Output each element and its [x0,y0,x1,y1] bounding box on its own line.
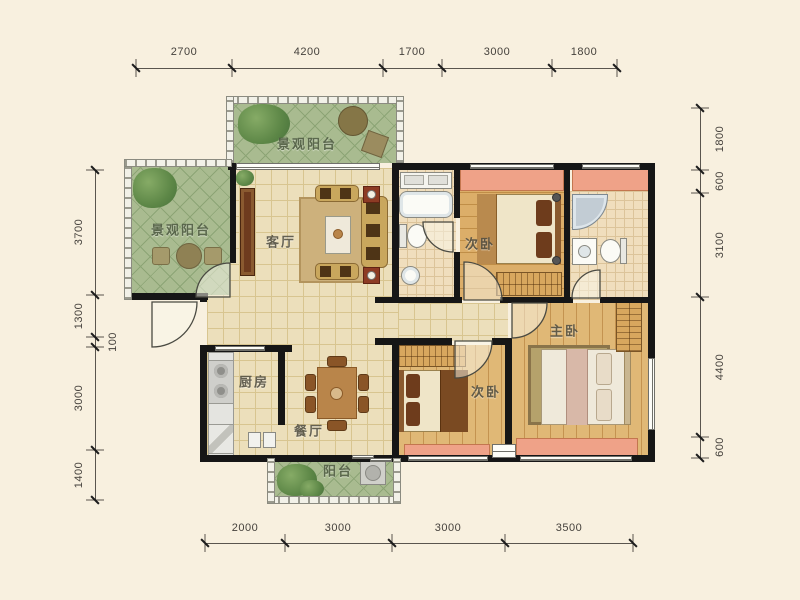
balcony-railing [226,96,234,163]
entrance-door-arc [152,302,197,347]
wall-segment [128,293,208,300]
dim-right-0: 1800 [714,126,726,152]
floor-plan: 2700 4200 1700 3000 1800 2000 3000 3000 … [0,0,800,600]
bath-sink [401,266,420,285]
burner [214,364,228,378]
bed-blanket [440,370,468,432]
dim-left-3: 3000 [73,385,85,411]
wall-segment [392,338,452,345]
wall-segment [505,338,512,461]
patio-table [338,106,368,136]
wardrobe [616,300,642,352]
dim-line-bottom [205,543,633,544]
wall-segment [392,297,462,303]
dim-right-4: 600 [714,437,726,457]
dining-chair [358,396,369,413]
dim-bottom-2: 3000 [435,522,461,534]
room-label-balcony-top: 景观阳台 [277,134,337,153]
wall-segment [392,345,399,461]
appliance [263,432,276,448]
toilet-bowl [407,224,427,248]
balcony-railing [396,96,404,163]
wall-segment [454,252,460,303]
toilet-bowl [600,239,621,263]
dim-bottom-0: 2000 [232,522,258,534]
dining-chair [327,420,347,431]
wall-segment [375,297,392,303]
bed-blanket [566,349,588,425]
room-label-kitchen: 厨房 [239,372,269,391]
wall-segment [278,345,285,425]
dining-chair [305,374,316,391]
wall-segment [500,297,573,303]
room-label-bedroom-top: 次卧 [465,234,495,253]
room-label-balcony-bottom: 阳台 [323,461,353,480]
patio-chair [152,247,170,265]
window [648,358,655,430]
dim-line-top [136,68,617,69]
wall-segment [200,348,207,462]
window [582,164,640,169]
headboard [624,349,631,425]
cushion [340,266,351,277]
headboard [555,194,561,264]
window [520,456,632,461]
basin-drum [365,465,381,481]
cushion [320,266,331,277]
dim-left-1: 1300 [73,303,85,329]
table-decor [330,387,343,400]
dining-chair [358,374,369,391]
balcony-railing [267,458,275,504]
pillow [406,402,420,426]
room-label-balcony-left: 景观阳台 [151,220,211,239]
toilet-tank [399,224,407,248]
room-label-bedroom-second: 次卧 [471,382,501,401]
tv-cabinet [240,188,255,276]
room-label-dining-room: 餐厅 [294,421,324,440]
window [408,456,488,461]
dim-right-1: 600 [714,171,726,191]
pillow [596,389,612,421]
bath-counter-inset [428,175,448,185]
window [236,163,380,170]
kitchen-sink [208,424,234,454]
bay-window [572,168,650,191]
pillow [596,353,612,385]
lamp [367,190,376,199]
dim-right-3: 4400 [714,354,726,380]
patio-chair [204,247,222,265]
dim-top-1: 4200 [294,46,320,58]
dim-left-4: 1400 [73,462,85,488]
dim-bottom-1: 3000 [325,522,351,534]
balcony-railing [124,159,232,167]
room-label-living-room: 客厅 [266,232,296,251]
cushion [366,224,380,237]
dim-line-right [700,108,701,458]
room-label-master-bedroom: 主卧 [550,321,580,340]
window [215,346,265,351]
table-decor [333,229,343,239]
wall-segment [564,170,570,303]
balcony-railing [226,96,404,104]
dim-right-2: 3100 [714,232,726,258]
dining-chair [305,396,316,413]
hallway-floor [398,303,508,341]
dining-chair [327,356,347,367]
sliding-door-leaf [370,458,392,462]
wall-segment [492,338,512,345]
dim-top-4: 1800 [571,46,597,58]
window [470,164,554,169]
cushion [340,188,351,199]
wall-segment [454,170,460,218]
dim-top-0: 2700 [171,46,197,58]
dim-top-2: 1700 [399,46,425,58]
cushion [366,247,380,260]
bed-blanket [477,194,497,264]
balcony-railing [393,458,401,504]
burner [214,384,228,398]
toilet-tank [620,238,627,264]
wall-segment [230,163,236,263]
lamp [367,271,376,280]
dim-bottom-3: 3500 [556,522,582,534]
wardrobe [496,272,562,296]
bath-counter-inset [404,175,424,185]
bathtub [399,191,453,218]
appliance [248,432,261,448]
dim-left-2: 100 [107,332,119,352]
wall-segment [392,163,399,303]
nightstand [552,256,561,265]
pillow [406,374,420,398]
window-box [492,444,516,458]
pillow [536,200,552,226]
balcony-railing [267,496,401,504]
patio-table [176,243,202,269]
balcony-railing [124,163,132,300]
nightstand [552,193,561,202]
dim-left-0: 3700 [73,219,85,245]
wall-segment [600,297,655,303]
cushion [320,188,331,199]
wardrobe [398,345,466,367]
dim-top-3: 3000 [484,46,510,58]
bay-window [460,168,564,191]
sink-basin [578,245,591,258]
pillow [536,232,552,258]
wall-segment [375,338,392,345]
